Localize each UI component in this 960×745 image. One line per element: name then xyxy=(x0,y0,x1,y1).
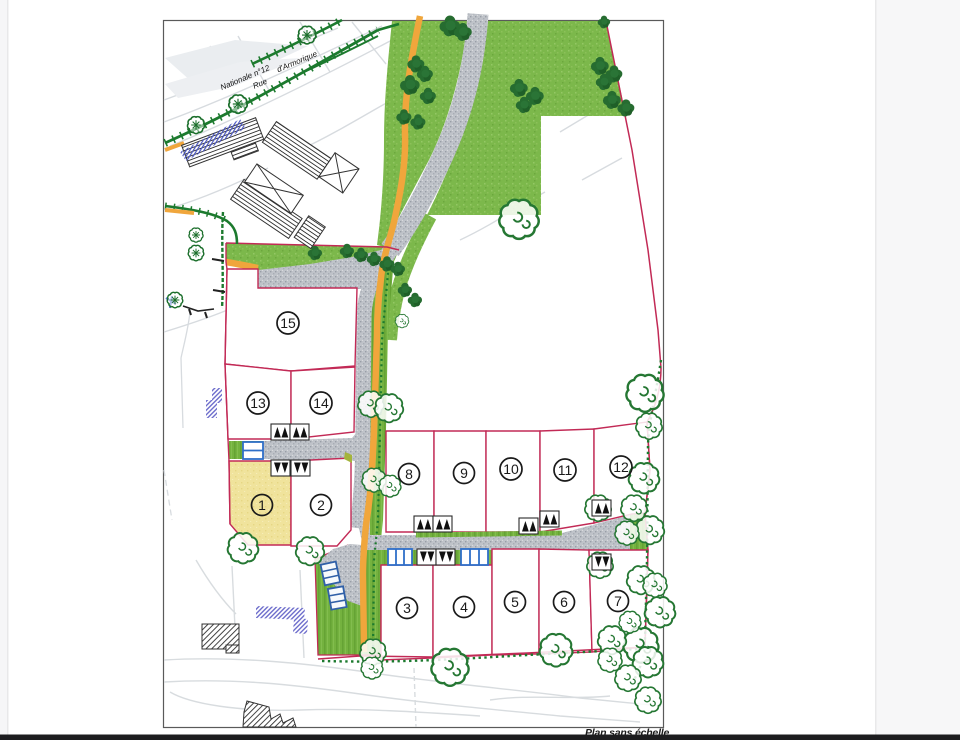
svg-text:11: 11 xyxy=(558,462,573,478)
svg-text:13: 13 xyxy=(250,395,266,411)
svg-text:8: 8 xyxy=(405,466,413,482)
svg-text:10: 10 xyxy=(503,461,519,477)
svg-text:6: 6 xyxy=(560,594,568,610)
svg-text:14: 14 xyxy=(313,395,329,411)
svg-text:1: 1 xyxy=(258,497,266,513)
svg-text:4: 4 xyxy=(460,599,468,615)
svg-text:12: 12 xyxy=(613,459,629,475)
svg-text:2: 2 xyxy=(317,497,325,513)
svg-text:9: 9 xyxy=(460,465,468,481)
svg-text:7: 7 xyxy=(614,593,622,609)
svg-text:5: 5 xyxy=(511,594,519,610)
svg-text:3: 3 xyxy=(403,600,411,616)
svg-text:15: 15 xyxy=(280,315,296,331)
